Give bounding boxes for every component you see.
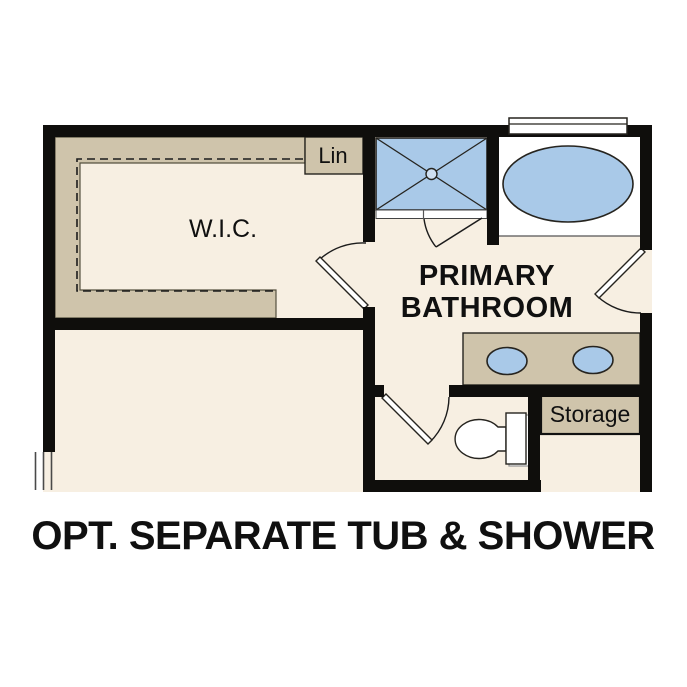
wall-shower-tub (487, 133, 499, 245)
wall-toilet-door-stub (375, 385, 384, 397)
floorplan-svg: W.I.C. Lin PRIMARY BATHROOM Storage OPT.… (0, 0, 687, 687)
wall-left (43, 125, 55, 452)
wall-under-vanity (449, 385, 652, 397)
window-frame (509, 118, 627, 134)
wall-toilet-bottom (363, 480, 541, 492)
lin-closet-label: Lin (318, 143, 347, 168)
wall-right-upper (640, 125, 652, 250)
sink-right (573, 347, 613, 374)
shower-drain (426, 169, 437, 180)
wall-wic-bottom (43, 318, 375, 330)
tub-basin (503, 146, 633, 222)
wall-right-lower (640, 313, 652, 492)
storage-label: Storage (550, 401, 631, 427)
primary-bathroom-label-line1: PRIMARY (419, 260, 555, 292)
window-above-tub (509, 118, 627, 134)
wall-wic-bath-upper (363, 137, 375, 242)
wic-room-label: W.I.C. (189, 215, 257, 243)
plan-title: OPT. SEPARATE TUB & SHOWER (31, 514, 655, 558)
toilet-tank (506, 413, 526, 464)
wall-wic-bath-lower (363, 307, 375, 492)
wall-toilet-right (528, 397, 540, 492)
floorplan-canvas: W.I.C. Lin PRIMARY BATHROOM Storage OPT.… (0, 0, 687, 687)
shower-curb (376, 210, 487, 219)
vanity (463, 333, 640, 385)
tub (499, 135, 640, 236)
primary-bathroom-label-line2: BATHROOM (401, 292, 574, 324)
sink-left (487, 348, 527, 375)
